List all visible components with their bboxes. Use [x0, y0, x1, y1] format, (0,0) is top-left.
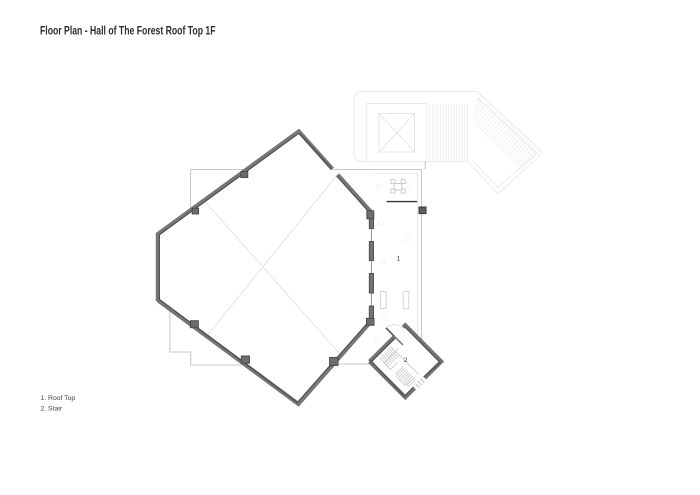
- svg-text:1: 1: [397, 255, 401, 262]
- svg-text:Floor Plan - Hall of The Fores: Floor Plan - Hall of The Forest Roof Top…: [40, 24, 216, 38]
- svg-text:2: 2: [404, 357, 408, 364]
- svg-text:2. Stair: 2. Stair: [41, 405, 63, 412]
- svg-text:1. Roof Top: 1. Roof Top: [41, 395, 76, 402]
